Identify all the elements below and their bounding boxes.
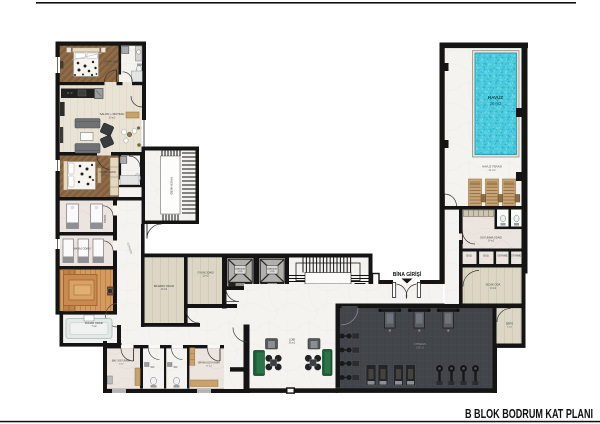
svg-text:139 m2: 139 m2: [416, 346, 425, 349]
svg-text:B BLOK BODRUM KAT PLANI: B BLOK BODRUM KAT PLANI: [465, 407, 593, 421]
svg-text:GİYİNME: GİYİNME: [511, 255, 522, 258]
svg-text:OYUN ODASI: OYUN ODASI: [197, 271, 214, 275]
svg-text:12 m2: 12 m2: [106, 65, 113, 67]
svg-text:30 m2: 30 m2: [109, 116, 116, 119]
svg-text:14 m2: 14 m2: [488, 241, 495, 243]
svg-text:YATAK ODASI: YATAK ODASI: [99, 170, 116, 174]
svg-text:12 m2: 12 m2: [101, 175, 108, 177]
svg-text:DUŞ: DUŞ: [466, 254, 472, 258]
svg-text:19 m2: 19 m2: [161, 289, 168, 291]
svg-text:8 KİŞİ: 8 KİŞİ: [270, 270, 275, 273]
svg-text:6 m2: 6 m2: [507, 327, 513, 329]
svg-text:SICAK ODA: SICAK ODA: [486, 283, 501, 287]
svg-text:DEPO: DEPO: [506, 322, 513, 326]
svg-text:BİNA GİRİŞİ: BİNA GİRİŞİ: [393, 271, 422, 278]
svg-text:GİYİNME: GİYİNME: [497, 255, 508, 258]
svg-text:8 KİŞİ: 8 KİŞİ: [238, 270, 243, 273]
svg-text:YANGIN MERD.: YANGIN MERD.: [170, 177, 173, 195]
svg-text:DUŞ: DUŞ: [483, 254, 489, 258]
svg-text:11 m2: 11 m2: [202, 276, 209, 278]
svg-text:SOYUNMA ODASI: SOYUNMA ODASI: [480, 236, 502, 240]
svg-text:7 m2: 7 m2: [91, 326, 97, 328]
svg-text:13 m2: 13 m2: [490, 288, 497, 290]
svg-text:WC: WC: [174, 366, 178, 369]
svg-text:BAYAN SOYUNMA: BAYAN SOYUNMA: [198, 362, 220, 365]
svg-text:HAVUZ: HAVUZ: [488, 95, 504, 100]
svg-text:BAY SOYUNMA: BAY SOYUNMA: [112, 360, 130, 363]
svg-text:MASAJ: MASAJ: [103, 215, 106, 224]
svg-text:26 m2: 26 m2: [490, 101, 502, 106]
svg-text:36 m2: 36 m2: [289, 343, 296, 345]
svg-text:32 m2: 32 m2: [489, 169, 497, 172]
svg-text:7 m2: 7 m2: [119, 364, 125, 366]
svg-text:YATAK ODASI: YATAK ODASI: [104, 60, 121, 64]
svg-text:WC: WC: [151, 366, 155, 369]
svg-text:11 m2: 11 m2: [206, 366, 213, 368]
svg-text:BUHAR ODASI: BUHAR ODASI: [85, 321, 103, 325]
svg-text:MASAJ ODASI: MASAJ ODASI: [74, 248, 91, 251]
